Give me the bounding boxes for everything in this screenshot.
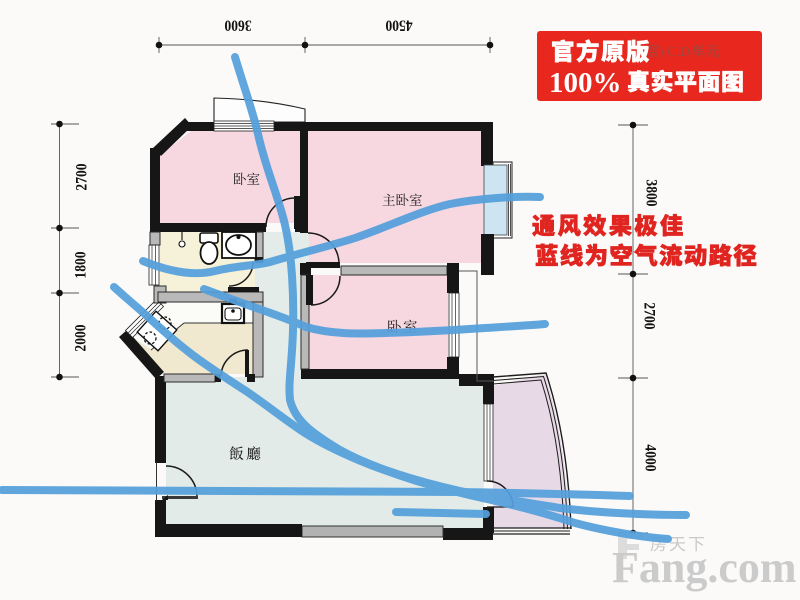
svg-text:4000: 4000 xyxy=(641,444,658,471)
svg-text:4500: 4500 xyxy=(385,16,412,33)
svg-text:2700: 2700 xyxy=(640,302,657,329)
svg-text:3600: 3600 xyxy=(224,16,251,33)
svg-text:3800: 3800 xyxy=(642,179,659,206)
svg-text:100%: 100% xyxy=(549,67,622,99)
svg-text:) C.D: ) C.D xyxy=(659,45,690,60)
svg-text:1800: 1800 xyxy=(73,251,90,278)
svg-text:2700: 2700 xyxy=(74,163,91,190)
svg-text:2000: 2000 xyxy=(73,324,90,351)
svg-text:Fang.com: Fang.com xyxy=(612,543,797,592)
